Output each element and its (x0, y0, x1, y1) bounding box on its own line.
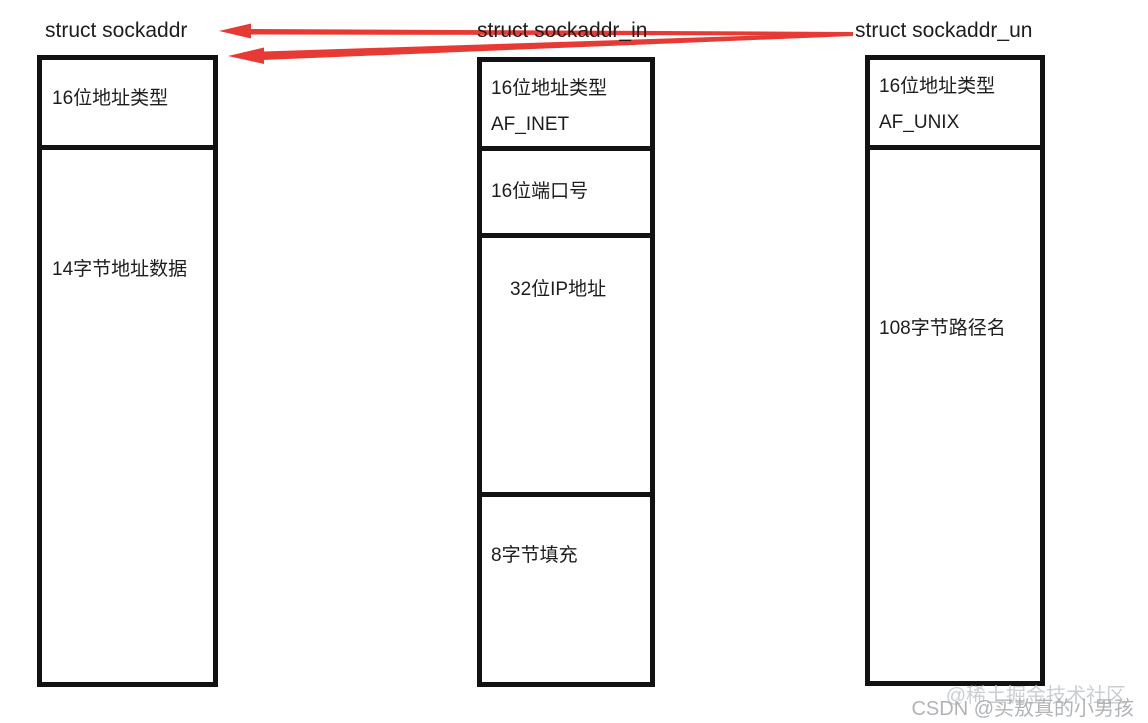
field-value: AF_INET (491, 107, 650, 143)
arrow-lower-head-icon (228, 48, 264, 65)
field-label: 8字节填充 (491, 544, 650, 568)
sockaddr-field-address-data: 14字节地址数据 (42, 150, 213, 682)
sockaddr-un-field-path: 108字节路径名 (870, 150, 1040, 681)
sockaddr-field-address-type: 16位地址类型 (42, 60, 213, 150)
sockaddr-un-field-address-type: 16位地址类型 AF_UNIX (870, 60, 1040, 150)
title-struct-sockaddr-un: struct sockaddr_un (855, 17, 1032, 45)
sockaddr-in-field-address-type: 16位地址类型 AF_INET (482, 62, 650, 151)
field-label: 16位地址类型 (879, 69, 1040, 105)
watermark-csdn: CSDN @买敖真的小男孩 (911, 692, 1134, 721)
box-struct-sockaddr-un: 16位地址类型 AF_UNIX 108字节路径名 (865, 55, 1045, 686)
sockaddr-structs-diagram: struct sockaddr struct sockaddr_in struc… (0, 0, 1148, 723)
field-label: 16位地址类型 (52, 87, 168, 111)
title-struct-sockaddr-in: struct sockaddr_in (477, 17, 647, 45)
title-struct-sockaddr: struct sockaddr (45, 17, 187, 45)
sockaddr-in-field-ip: 32位IP地址 (482, 238, 650, 497)
sockaddr-in-field-padding: 8字节填充 (482, 497, 650, 682)
box-struct-sockaddr: 16位地址类型 14字节地址数据 (37, 55, 218, 687)
field-label: 108字节路径名 (879, 317, 1040, 341)
field-label: 16位地址类型 (491, 71, 650, 107)
box-struct-sockaddr-in: 16位地址类型 AF_INET 16位端口号 32位IP地址 8字节填充 (477, 57, 655, 687)
arrow-upper-head-icon (219, 24, 251, 39)
field-label: 14字节地址数据 (52, 258, 213, 282)
field-value: AF_UNIX (879, 105, 1040, 141)
field-label: 16位端口号 (491, 180, 588, 204)
sockaddr-in-field-port: 16位端口号 (482, 151, 650, 238)
field-label: 32位IP地址 (510, 278, 650, 302)
